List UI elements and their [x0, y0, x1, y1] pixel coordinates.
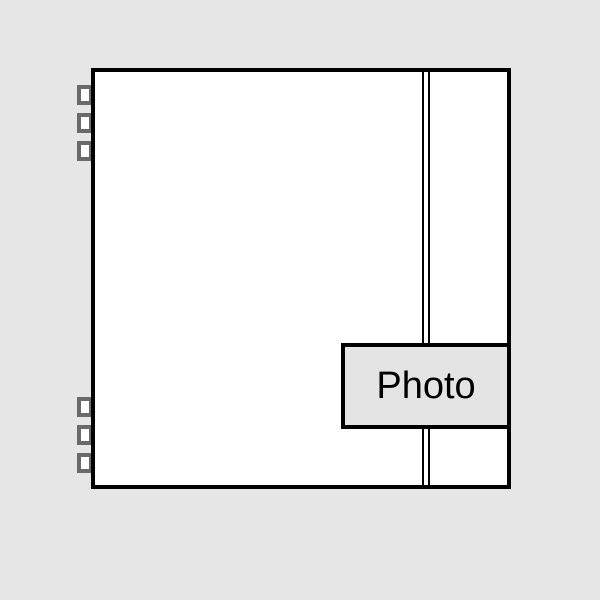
photo-label-text: Photo — [376, 367, 475, 405]
photo-album-figure: Photo — [0, 0, 600, 600]
photo-label-box[interactable]: Photo — [341, 343, 511, 429]
